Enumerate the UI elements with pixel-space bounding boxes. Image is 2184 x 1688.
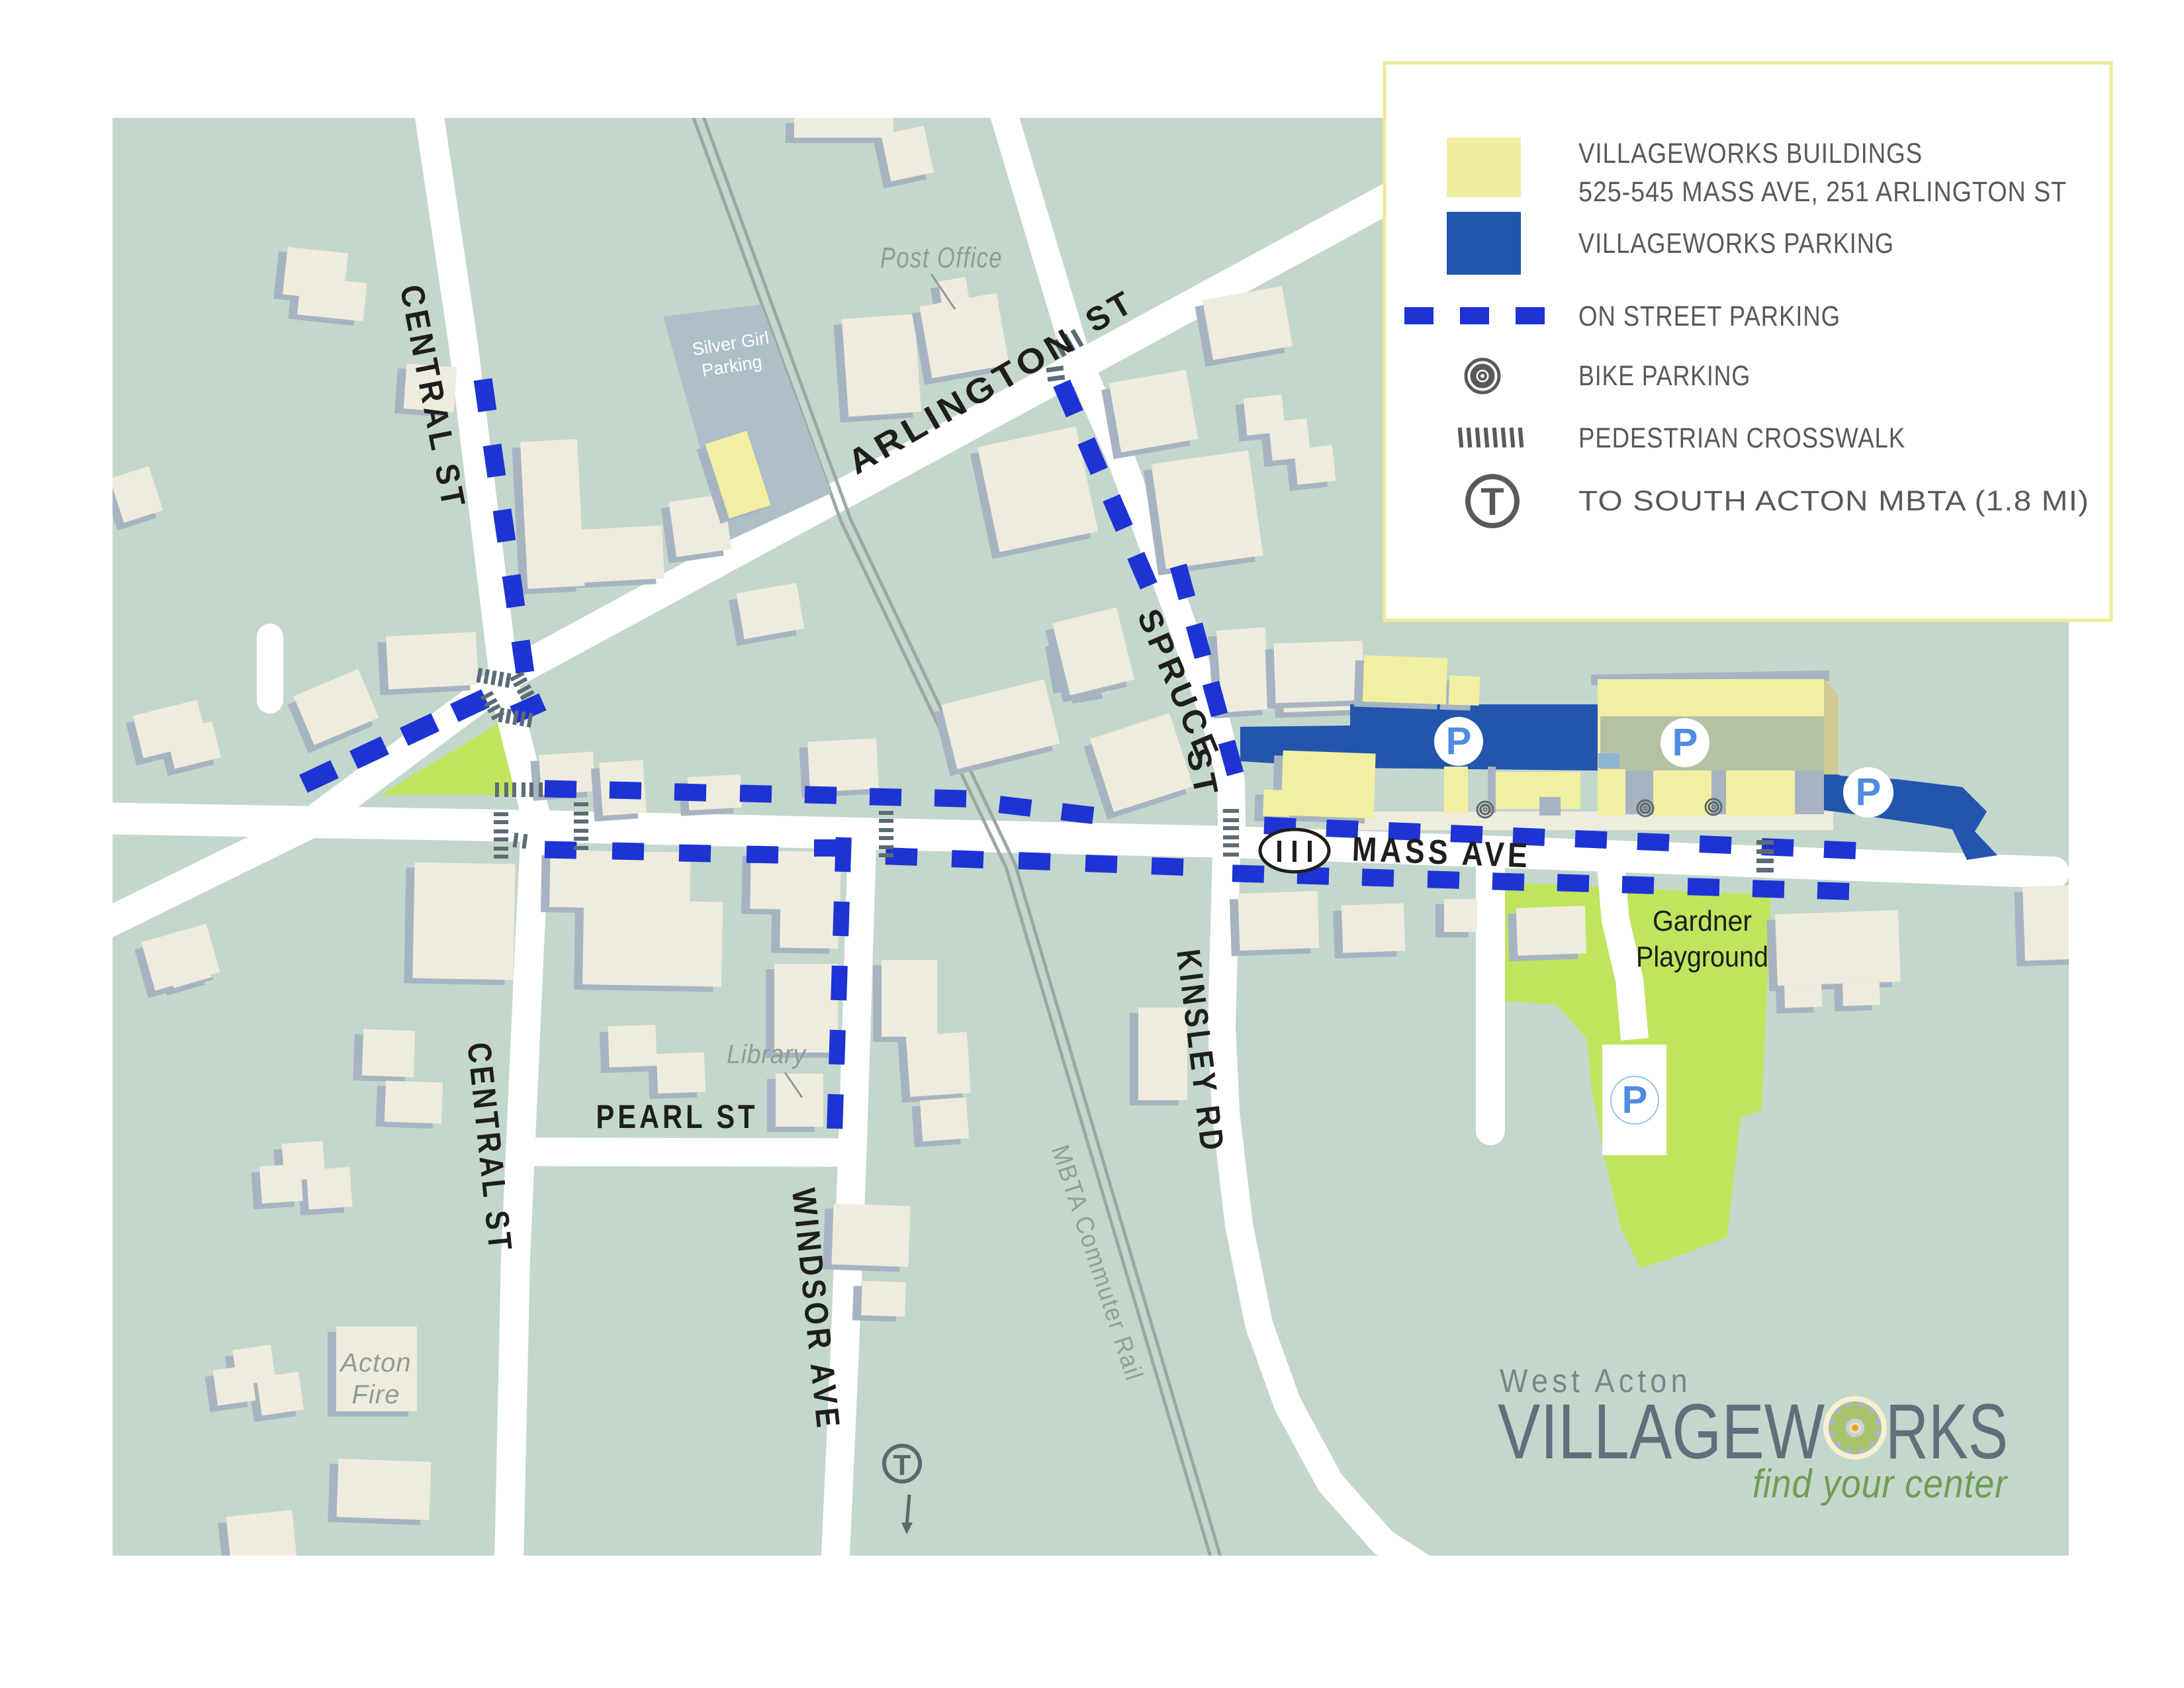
- svg-text:Playground: Playground: [1636, 941, 1768, 973]
- svg-text:MASS AVE: MASS AVE: [1351, 830, 1531, 875]
- svg-text:Gardner: Gardner: [1653, 905, 1752, 937]
- svg-text:PEDESTRIAN CROSSWALK: PEDESTRIAN CROSSWALK: [1578, 422, 1905, 454]
- svg-text:525-545 MASS AVE, 251 ARLINGTO: 525-545 MASS AVE, 251 ARLINGTON ST: [1578, 176, 2067, 208]
- svg-text:VILLAGEWORKS PARKING: VILLAGEWORKS PARKING: [1578, 228, 1894, 259]
- svg-text:VILLAGEWORKS BUILDINGS: VILLAGEWORKS BUILDINGS: [1578, 138, 1923, 169]
- svg-text:Fire: Fire: [352, 1380, 400, 1409]
- svg-text:P: P: [1622, 1078, 1648, 1121]
- svg-text:find your center: find your center: [1752, 1462, 2008, 1506]
- svg-text:Post Office: Post Office: [880, 242, 1003, 274]
- svg-text:P: P: [1672, 721, 1698, 764]
- svg-text:T: T: [893, 1449, 911, 1481]
- svg-text:BIKE PARKING: BIKE PARKING: [1578, 360, 1751, 392]
- svg-text:P: P: [1856, 771, 1882, 814]
- svg-text:Acton: Acton: [339, 1348, 411, 1378]
- svg-text:P: P: [1446, 720, 1472, 763]
- svg-text:TO SOUTH ACTON MBTA (1.8 MI): TO SOUTH ACTON MBTA (1.8 MI): [1578, 485, 2089, 517]
- svg-text:ON STREET PARKING: ON STREET PARKING: [1578, 301, 1841, 332]
- svg-text:T: T: [1480, 481, 1504, 524]
- svg-text:Library: Library: [727, 1040, 807, 1069]
- svg-text:PEARL ST: PEARL ST: [596, 1098, 758, 1135]
